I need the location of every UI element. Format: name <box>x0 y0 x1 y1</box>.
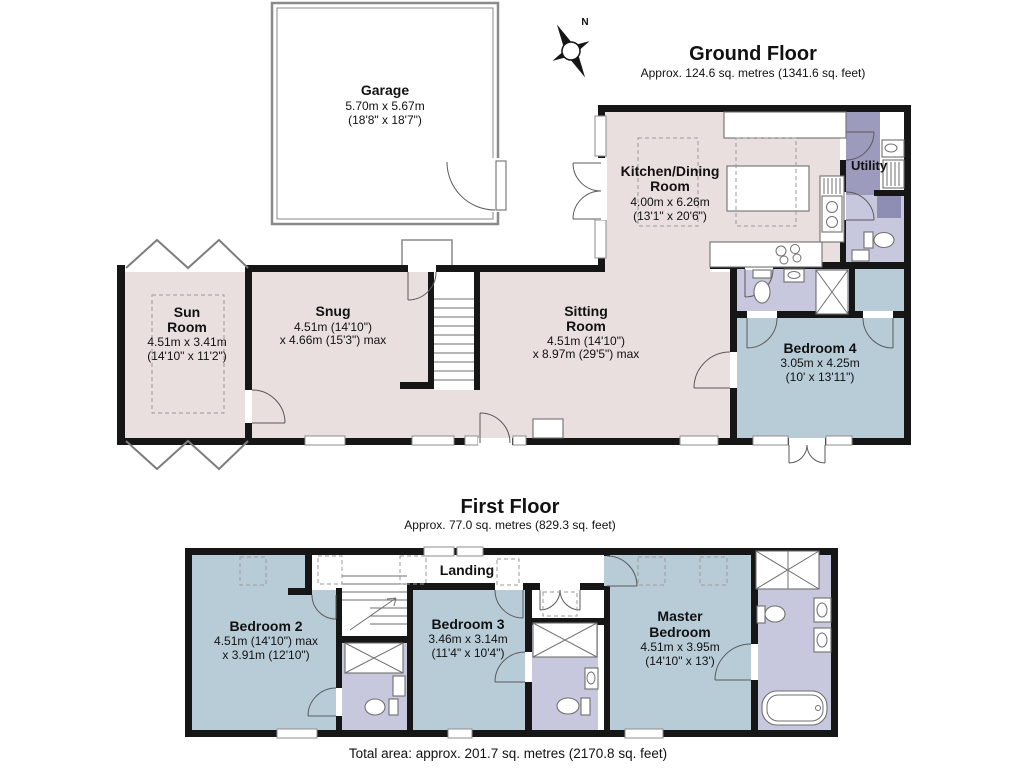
ff-stairs <box>342 576 407 630</box>
total-area-label: Total area: approx. 201.7 sq. metres (21… <box>349 746 667 761</box>
compass-north-label: N <box>581 17 588 28</box>
svg-text:4.00m x 6.26m: 4.00m x 6.26m <box>630 195 709 209</box>
snug-label: Snug <box>316 303 351 319</box>
bedroom4-closet <box>855 269 904 311</box>
wc-cistern <box>864 232 873 248</box>
sun-room-label: Sun <box>174 304 200 320</box>
bedroom2-label: Bedroom 2 <box>229 618 302 634</box>
toilet <box>765 606 785 622</box>
svg-text:4.51m (14'10"): 4.51m (14'10") <box>547 334 625 348</box>
svg-text:3.05m x 4.25m: 3.05m x 4.25m <box>780 356 859 370</box>
sink <box>784 269 804 282</box>
wc-toilet <box>874 233 894 248</box>
svg-text:4.51m (14'10") max: 4.51m (14'10") max <box>214 634 318 648</box>
kitchen-worktop <box>724 112 846 138</box>
landing-label: Landing <box>440 562 494 578</box>
ground-floor-subtitle: Approx. 124.6 sq. metres (1341.6 sq. fee… <box>641 66 866 80</box>
kitchen-label: Kitchen/Dining <box>621 163 720 179</box>
svg-text:x 8.97m (29'5") max: x 8.97m (29'5") max <box>533 347 640 361</box>
svg-text:4.51m x 3.41m: 4.51m x 3.41m <box>147 335 226 349</box>
kitchen-island <box>727 166 809 211</box>
svg-text:(14'10" x 13'): (14'10" x 13') <box>645 654 715 668</box>
svg-text:(14'10" x 11'2"): (14'10" x 11'2") <box>147 349 227 363</box>
toilet-cistern <box>757 606 765 623</box>
svg-text:x 3.91m (12'10"): x 3.91m (12'10") <box>222 648 309 662</box>
floorplan-page: N Ground Floor Approx. 124.6 sq. metres … <box>0 0 1024 768</box>
sitting-room-label: Sitting <box>564 303 608 319</box>
svg-text:(11'4" x 10'4"): (11'4" x 10'4") <box>432 646 505 660</box>
svg-text:Room: Room <box>650 178 690 194</box>
master-bedroom-label: Master <box>657 608 703 624</box>
svg-text:(18'8" x 18'7"): (18'8" x 18'7") <box>348 113 422 127</box>
toilet <box>557 698 579 714</box>
kitchen-counter-bottom <box>710 242 822 267</box>
toilet-cistern <box>581 698 590 715</box>
first-floor-plan: First Floor Approx. 77.0 sq. metres (829… <box>185 496 838 738</box>
bedroom4-label: Bedroom 4 <box>783 340 856 356</box>
first-floor-title: First Floor <box>461 496 560 518</box>
svg-text:Room: Room <box>566 318 606 334</box>
utility-label: Utility <box>851 158 888 173</box>
sink <box>393 676 405 696</box>
floorplan-canvas: N Ground Floor Approx. 124.6 sq. metres … <box>0 0 1024 768</box>
toilet <box>754 281 770 303</box>
svg-text:3.46m x 3.14m: 3.46m x 3.14m <box>428 632 507 646</box>
wc-closet <box>877 196 901 218</box>
first-floor-subtitle: Approx. 77.0 sq. metres (829.3 sq. feet) <box>404 518 615 532</box>
wc-sink <box>852 250 869 261</box>
toilet <box>365 699 385 715</box>
svg-text:x 4.66m (15'3") max: x 4.66m (15'3") max <box>280 333 387 347</box>
svg-text:Room: Room <box>167 319 207 335</box>
svg-text:Bedroom: Bedroom <box>649 624 710 640</box>
svg-text:4.51m (14'10"): 4.51m (14'10") <box>294 320 372 334</box>
svg-text:5.70m x 5.67m: 5.70m x 5.67m <box>345 99 424 113</box>
garage-door-arc <box>447 162 495 210</box>
svg-text:4.51m x 3.95m: 4.51m x 3.95m <box>640 640 719 654</box>
room-bedroom-3 <box>413 590 525 730</box>
toilet-cistern <box>753 270 771 278</box>
ground-floor-title: Ground Floor <box>689 43 817 65</box>
svg-text:(10' x 13'11"): (10' x 13'11") <box>786 370 855 384</box>
chimney-breast <box>533 419 563 438</box>
gf-stairwell <box>434 272 474 390</box>
garage-door-leaf <box>496 161 506 210</box>
compass-icon <box>538 15 603 88</box>
toilet-cistern <box>389 699 398 715</box>
ground-floor-plan: N Ground Floor Approx. 124.6 sq. metres … <box>117 3 911 469</box>
garage-label: Garage <box>361 82 409 98</box>
bedroom3-label: Bedroom 3 <box>431 616 504 632</box>
svg-text:(13'1" x 20'6"): (13'1" x 20'6") <box>633 209 707 223</box>
